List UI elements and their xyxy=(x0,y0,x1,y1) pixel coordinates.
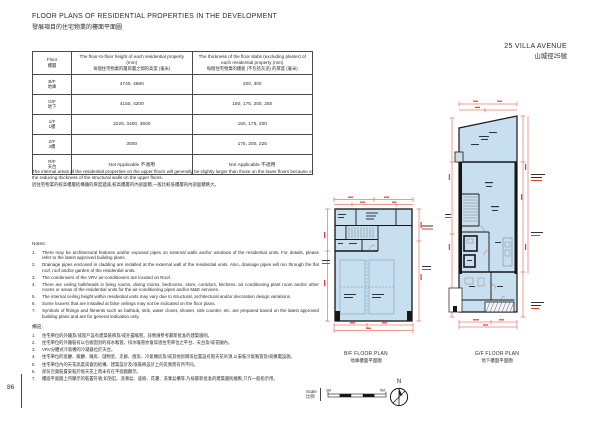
notes-label-zh: 備註: xyxy=(32,323,319,330)
gf-plan-caption: G/F FLOOR PLAN 地下樓面平面圖 xyxy=(432,351,562,364)
cell-thickness: 150, 175, 200, 250 xyxy=(192,94,313,114)
note-item: 4.There are ceiling bulkheads in living … xyxy=(32,282,319,293)
cell-height: 3500 xyxy=(72,134,193,154)
bf-caption-zh: 地庫樓面平面圖 xyxy=(310,358,422,364)
page-number: 86 xyxy=(7,384,14,391)
note-item-zh: 1.住宅單位的外牆及/或窗戶設有建築裝飾及/或外露喉管。詳情請參考最新批准的建築… xyxy=(32,333,319,339)
gf-left-wall xyxy=(459,162,462,274)
scale-label-zh: 比例 xyxy=(306,394,317,399)
internal-area-remark: The internal areas of the residential pr… xyxy=(32,169,317,188)
brochure-page: FLOOR PLANS OF RESIDENTIAL PROPERTIES IN… xyxy=(0,0,600,424)
note-item: 6.Some louvers that are installed at fal… xyxy=(32,301,319,306)
gf-entrance-hatch xyxy=(485,302,514,312)
note-item-zh: 5.住宅單位內的天花高度或會因結構、建築設計及/或裝飾設計上的差異而有所不同。 xyxy=(32,362,319,368)
cell-floor: B/F地庫 xyxy=(33,74,72,94)
notes-label-en: Notes: xyxy=(32,242,319,247)
note-item-zh: 7.樓面平面圖上所顯示的裝置符號,如浴缸、洗滌盆、座廁、花灑、洗滌盆櫃等,乃按最… xyxy=(32,376,319,382)
floor-spec-table: Floor 樓層 The floor-to-floor height of ea… xyxy=(32,51,313,175)
table-row: B/F地庫 4740, 4680 200, 300 xyxy=(33,74,313,94)
notes-section: Notes: 1.There may be architectural feat… xyxy=(32,242,319,383)
table-row: G/F地下 4150, 4200 150, 175, 200, 250 xyxy=(33,94,313,114)
header-height-en: The floor-to-floor height of each reside… xyxy=(74,54,190,65)
gf-floor-plan-drawing xyxy=(445,74,575,342)
scale-right-label: 5M xyxy=(380,389,385,393)
cell-floor: 1/F1樓 xyxy=(33,114,72,134)
cell-thickness: 200, 300 xyxy=(192,74,313,94)
notes-zh-section: 備註: 1.住宅單位的外牆及/或窗戶設有建築裝飾及/或外露喉管。詳情請參考最新批… xyxy=(32,323,319,381)
header-thickness-zh: 每個住宅物業的樓板 (不包括灰泥) 的厚度 (毫米) xyxy=(195,66,311,72)
cell-floor: 2/F2樓 xyxy=(33,134,72,154)
cell-thickness: 150, 175, 200 xyxy=(192,114,313,134)
scale-divider xyxy=(320,388,321,401)
development-address: 25 VILLA AVENUE 山城徑25號 xyxy=(430,43,567,60)
compass-icon xyxy=(388,386,410,408)
north-compass: N xyxy=(388,379,410,413)
cell-floor: G/F地下 xyxy=(33,94,72,114)
note-item: 3.The condensers of the VRV air-conditio… xyxy=(32,275,319,280)
note-item: 2.Drainage pipes enclosed in cladding ar… xyxy=(32,262,319,273)
page-title-en: FLOOR PLANS OF RESIDENTIAL PROPERTIES IN… xyxy=(32,13,322,20)
note-item: 5.The internal ceiling height within res… xyxy=(32,294,319,299)
bf-caption-en: B/F FLOOR PLAN xyxy=(310,351,422,357)
remark-en: The internal areas of the residential pr… xyxy=(32,169,317,181)
scale-left-label: 0M xyxy=(326,389,331,393)
address-en: 25 VILLA AVENUE xyxy=(430,43,567,50)
bf-wall-post xyxy=(407,311,412,321)
header-thickness-en: The thickness of the floor slabs (exclud… xyxy=(195,54,311,65)
table-row: 1/F1樓 3225, 3400, 3500 150, 175, 200 xyxy=(33,114,313,134)
bf-wall-post xyxy=(335,311,340,321)
page-title: FLOOR PLANS OF RESIDENTIAL PROPERTIES IN… xyxy=(32,13,322,31)
page-title-zh: 發展項目的住宅物業的樓面平面圖 xyxy=(32,22,322,31)
gf-porch xyxy=(455,152,463,162)
gf-caption-en: G/F FLOOR PLAN xyxy=(432,351,562,357)
cell-height: 4150, 4200 xyxy=(72,94,193,114)
page-number-rule xyxy=(21,374,22,408)
scale-bar-graphic: 0M 5M xyxy=(324,387,390,401)
cell-height: 4740, 4680 xyxy=(72,74,193,94)
table-header-row: Floor 樓層 The floor-to-floor height of ea… xyxy=(33,52,313,75)
header-height-zh: 每個住宅物業的層與層之間的高度 (毫米) xyxy=(74,66,190,72)
gf-caption-zh: 地下樓面平面圖 xyxy=(432,358,562,364)
note-item: 1.There may be architectural features an… xyxy=(32,250,319,261)
north-label: N xyxy=(388,379,410,385)
gf-platform-post xyxy=(453,306,457,312)
note-item-zh: 3.VRV分體式冷氣機的冷凝器位於天台。 xyxy=(32,347,319,353)
gf-outer-wall xyxy=(459,116,517,312)
header-thickness: The thickness of the floor slabs (exclud… xyxy=(192,52,313,75)
bf-plan-caption: B/F FLOOR PLAN 地庫樓面平面圖 xyxy=(310,351,422,364)
table-row: 2/F2樓 3500 175, 200, 225 xyxy=(33,134,313,154)
scale-label: Scale 比例 xyxy=(306,389,317,400)
header-floor-zh: 樓層 xyxy=(35,63,69,69)
scale-bar: Scale 比例 0M 5M xyxy=(306,387,390,401)
note-item-zh: 2.住宅單位的外牆裝有以包板圍封的排水喉管。排水喉管亦會穿過住宅單位之平台、天台… xyxy=(32,340,319,346)
note-item-zh: 6.部份百葉裝置安裝於假天花上而未有在平面圖顯示。 xyxy=(32,369,319,375)
note-item: 7.Symbols of fittings and fitments such … xyxy=(32,308,319,319)
address-zh: 山城徑25號 xyxy=(430,51,567,60)
header-floor-en: Floor xyxy=(35,57,69,63)
remark-zh: 因住宅物業的較高樓層結構牆的厚度遞減,較高樓層的內部面積,一般比較低樓層的內部面… xyxy=(32,182,317,188)
cell-thickness: 175, 200, 225 xyxy=(192,134,313,154)
gf-right-wall xyxy=(515,162,518,274)
cell-height: 3225, 3400, 3500 xyxy=(72,114,193,134)
bf-floor-plan-drawing xyxy=(322,194,434,346)
note-item-zh: 4.住宅單位的客廳、飯廳、睡房、儲物室、走廊、廚房、冷氣機房及/或其他房間或位置… xyxy=(32,354,319,360)
header-height: The floor-to-floor height of each reside… xyxy=(72,52,193,75)
header-floor: Floor 樓層 xyxy=(33,52,72,75)
